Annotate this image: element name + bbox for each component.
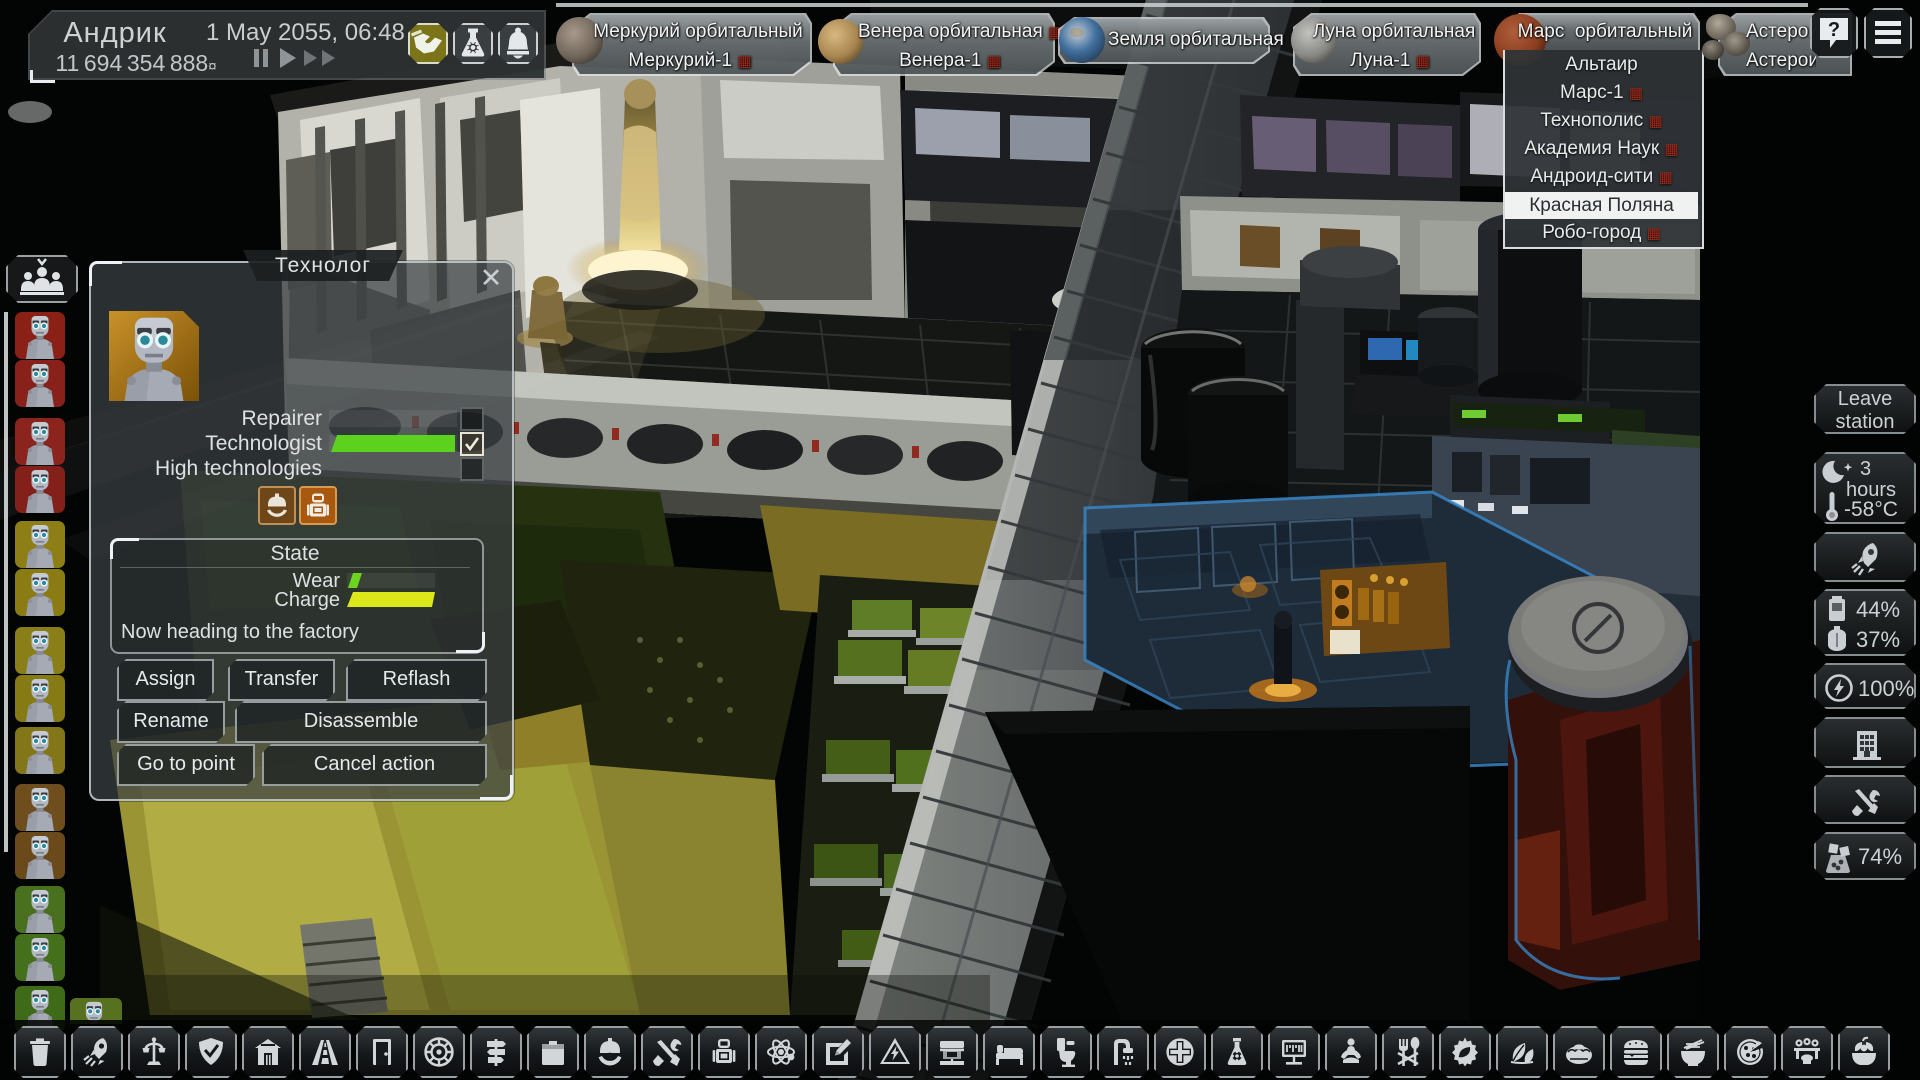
svg-text:?: ? [1828, 19, 1840, 41]
